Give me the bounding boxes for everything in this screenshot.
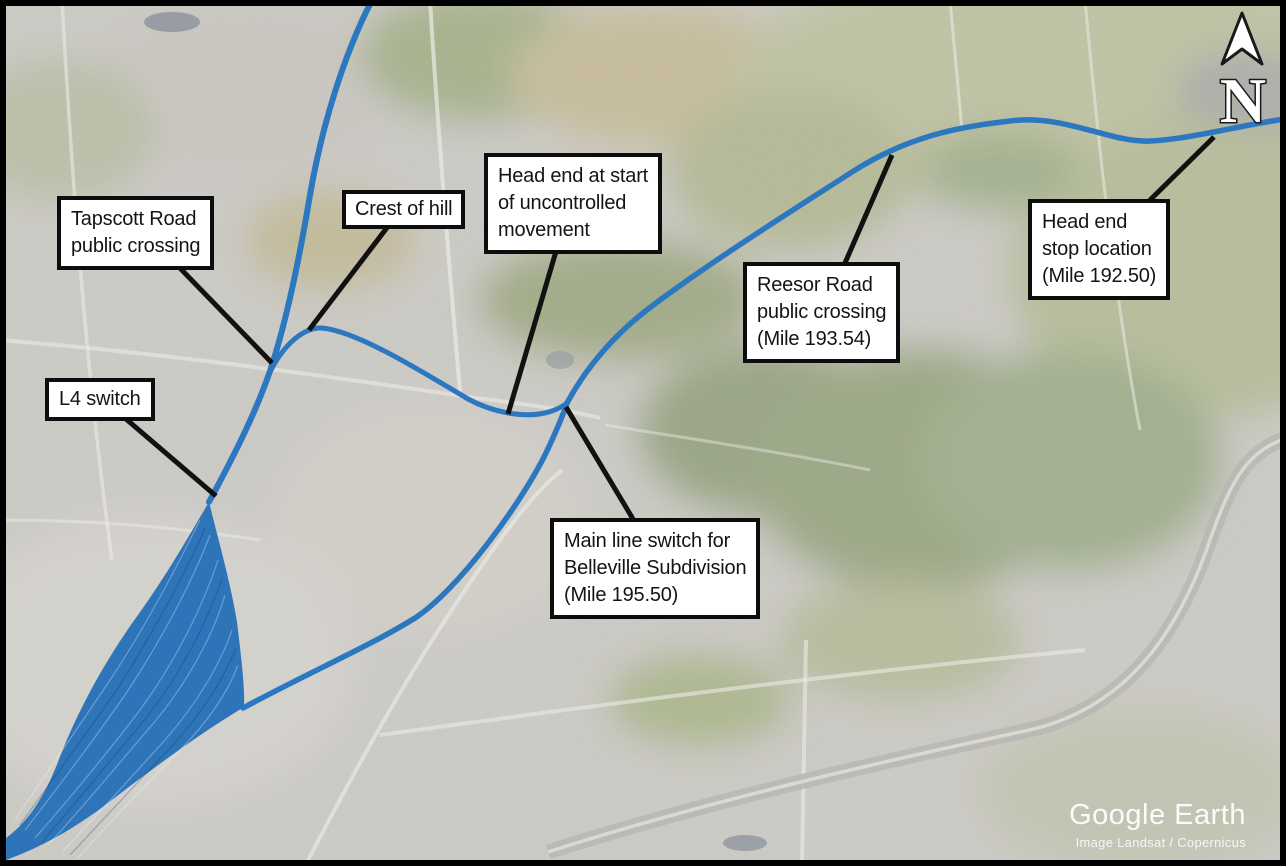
- imagery-credit: Image Landsat / Copernicus: [1069, 835, 1246, 850]
- attribution: Google Earth Image Landsat / Copernicus: [1069, 799, 1246, 850]
- callout-head-end-start: Head end at start of uncontrolled moveme…: [484, 153, 662, 254]
- google-earth-logo: Google Earth: [1069, 799, 1246, 832]
- map-canvas: N: [0, 0, 1286, 866]
- callout-l4-switch: L4 switch: [45, 378, 155, 421]
- callout-tapscott-road-crossing: Tapscott Road public crossing: [57, 196, 214, 270]
- north-label: N: [1220, 65, 1266, 136]
- callout-belleville-main-line-switch: Main line switch for Belleville Subdivis…: [550, 518, 760, 619]
- satellite-map-figure: N Tapscott Road public crossing Crest of…: [0, 0, 1286, 866]
- callout-head-end-stop: Head end stop location (Mile 192.50): [1028, 199, 1170, 300]
- callout-crest-of-hill: Crest of hill: [342, 190, 465, 229]
- callout-reesor-road-crossing: Reesor Road public crossing (Mile 193.54…: [743, 262, 900, 363]
